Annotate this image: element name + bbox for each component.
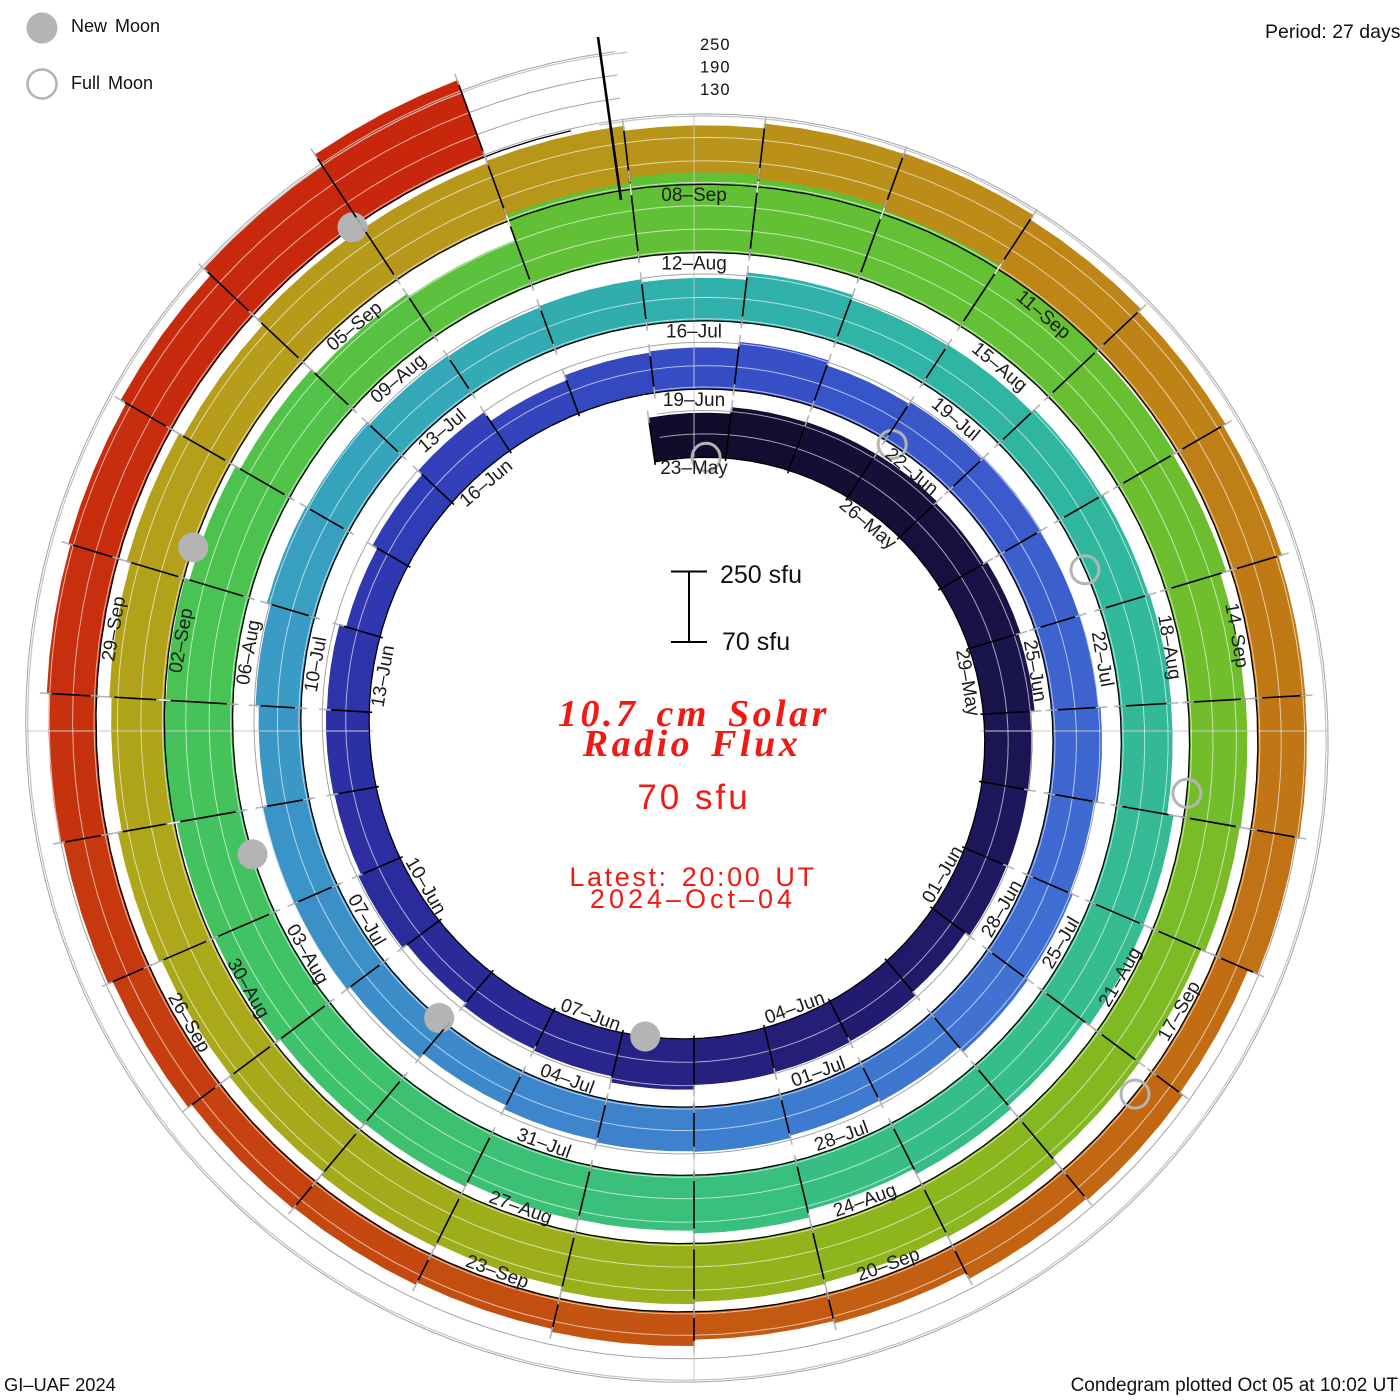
svg-text:250 sfu: 250 sfu (720, 561, 802, 589)
svg-text:70 sfu: 70 sfu (722, 628, 790, 656)
svg-text:12–Aug: 12–Aug (661, 253, 727, 274)
svg-text:New Moon: New Moon (71, 16, 160, 36)
svg-text:Full Moon: Full Moon (71, 73, 153, 93)
svg-text:130: 130 (700, 81, 731, 99)
svg-text:70 sfu: 70 sfu (637, 778, 750, 817)
svg-text:250: 250 (700, 36, 731, 54)
svg-text:16–Jul: 16–Jul (666, 322, 722, 343)
svg-text:2024–Oct–04: 2024–Oct–04 (590, 884, 796, 914)
svg-text:08–Sep: 08–Sep (661, 185, 727, 206)
svg-text:GI–UAF 2024: GI–UAF 2024 (4, 1374, 116, 1395)
svg-text:19–Jun: 19–Jun (663, 390, 725, 411)
svg-text:190: 190 (700, 59, 731, 77)
svg-text:23–May: 23–May (660, 458, 728, 479)
svg-text:Radio Flux: Radio Flux (582, 723, 801, 765)
svg-text:Period: 27 days: Period: 27 days (1265, 21, 1400, 43)
svg-text:Condegram plotted Oct 05 at 10: Condegram plotted Oct 05 at 10:02 UT (1071, 1375, 1399, 1396)
